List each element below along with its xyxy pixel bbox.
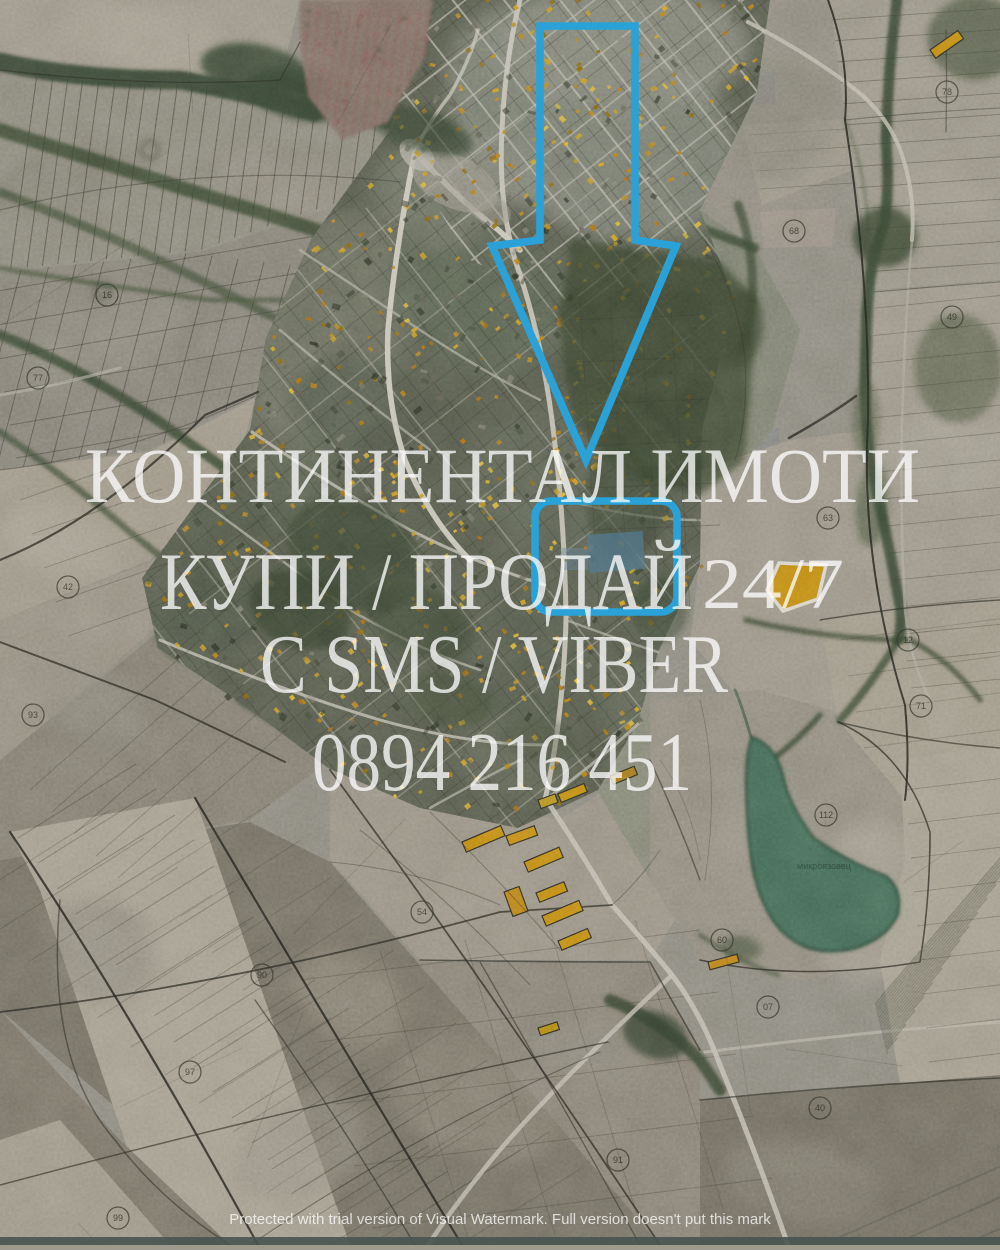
svg-text:КОНТИНЕНТАЛ ИМОТИ: КОНТИНЕНТАЛ ИМОТИ bbox=[85, 432, 920, 519]
svg-text:КУПИ / ПРОДАЙ: КУПИ / ПРОДАЙ bbox=[160, 536, 693, 627]
svg-text:С SMS / VIBER: С SMS / VIBER bbox=[260, 618, 728, 711]
svg-text:24/7: 24/7 bbox=[702, 544, 844, 624]
svg-text:0894 216 451: 0894 216 451 bbox=[312, 716, 692, 809]
svg-text:Protected with trial version o: Protected with trial version of Visual W… bbox=[229, 1211, 771, 1228]
